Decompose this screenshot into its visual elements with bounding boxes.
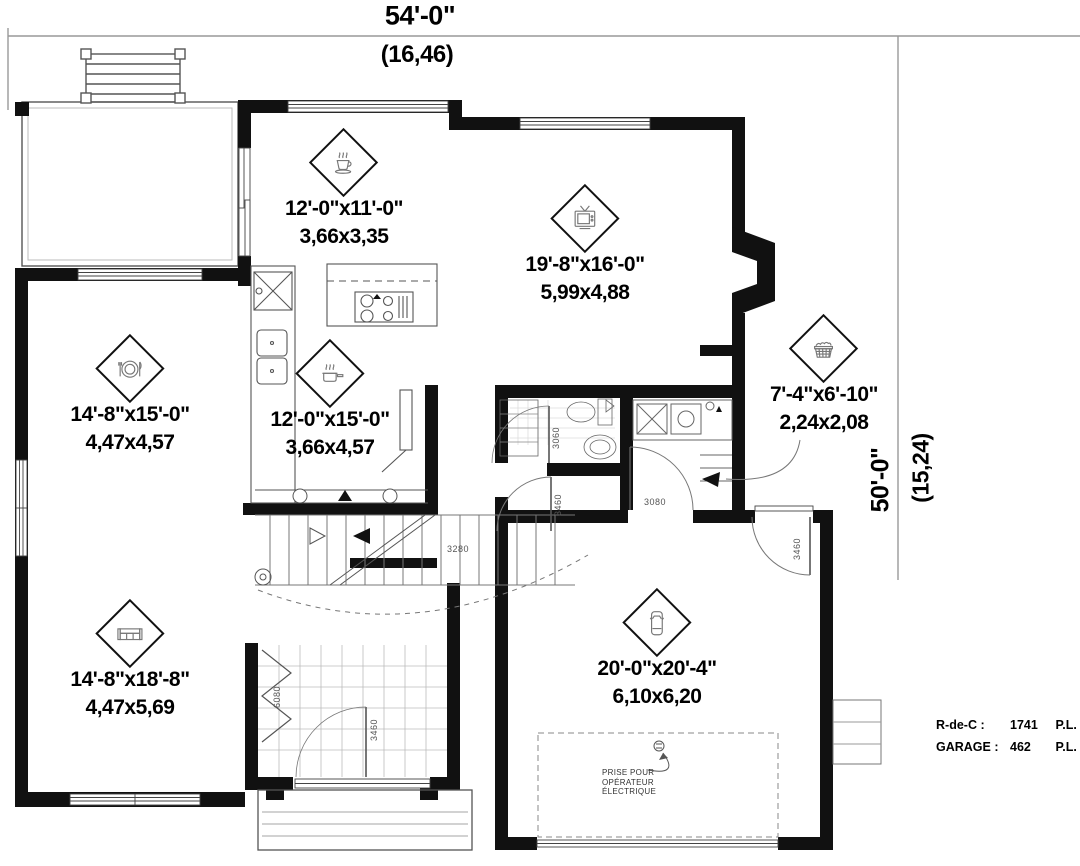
legend-value: 1741 bbox=[1010, 718, 1056, 732]
deck bbox=[22, 49, 238, 266]
room-label-dining: 14'-8"x15'-0" 4,47x4,57 bbox=[70, 335, 189, 457]
room-imperial: 19'-8"x16'-0" bbox=[525, 251, 644, 279]
legend-label: GARAGE : bbox=[936, 740, 1010, 754]
saucepan-icon bbox=[295, 338, 364, 407]
room-imperial: 12'-0"x11'-0" bbox=[285, 195, 403, 223]
legend-label: R-de-C : bbox=[936, 718, 1010, 732]
hall-door-size: 3460 bbox=[553, 494, 563, 516]
room-metric: 2,24x2,08 bbox=[780, 409, 869, 437]
bath-door-size: 3060 bbox=[551, 427, 561, 449]
mudroom-door-size: 3080 bbox=[644, 497, 666, 507]
note-line-3: ÉLECTRIQUE bbox=[602, 787, 656, 797]
right-dimension-feet: 50'-0" bbox=[867, 448, 896, 513]
room-metric: 3,66x4,57 bbox=[286, 434, 375, 462]
room-imperial: 20'-0"x20'-4" bbox=[597, 655, 716, 683]
legend-row-garage: GARAGE : 462 P.L. bbox=[936, 736, 1080, 758]
walls bbox=[15, 100, 833, 850]
right-dimension-metric: (15,24) bbox=[908, 433, 935, 502]
room-imperial: 7'-4"x6'-10" bbox=[770, 381, 878, 409]
area-legend: R-de-C : 1741 P.L. GARAGE : 462 P.L. bbox=[936, 714, 1080, 758]
room-label-dinette: 12'-0"x15'-0" 3,66x4,57 bbox=[270, 340, 389, 462]
closet-door-size: 6080 bbox=[272, 686, 282, 708]
note-line-2: OPÉRATEUR bbox=[602, 778, 656, 788]
room-label-garage: 20'-0"x20'-4" 6,10x6,20 bbox=[597, 589, 716, 711]
room-label-kitchen: 12'-0"x11'-0" 3,66x3,35 bbox=[285, 129, 403, 251]
legend-unit: P.L. bbox=[1056, 740, 1080, 754]
room-metric: 4,47x4,57 bbox=[86, 429, 175, 457]
garage-service-door-size: 3460 bbox=[792, 538, 802, 560]
legend-row-rdc: R-de-C : 1741 P.L. bbox=[936, 714, 1080, 736]
floor-plan-canvas: 54'-0" (16,46) 50'-0" (15,24) 12'-0"x11'… bbox=[0, 0, 1080, 866]
tv-icon bbox=[550, 183, 619, 252]
laundry-room bbox=[497, 400, 810, 575]
note-line-1: PRISE POUR bbox=[602, 768, 656, 778]
top-dimension-metric: (16,46) bbox=[381, 41, 454, 69]
legend-unit: P.L. bbox=[1056, 718, 1080, 732]
stair-opening-size: 3280 bbox=[447, 544, 469, 554]
legend-value: 462 bbox=[1010, 740, 1056, 754]
room-metric: 5,99x4,88 bbox=[541, 279, 630, 307]
room-metric: 3,66x3,35 bbox=[300, 223, 389, 251]
room-imperial: 12'-0"x15'-0" bbox=[270, 406, 389, 434]
room-label-laundry: 7'-4"x6'-10" 2,24x2,08 bbox=[770, 315, 878, 437]
car-icon bbox=[622, 587, 691, 656]
laundry-basket-icon bbox=[789, 313, 858, 382]
plate-cutlery-icon bbox=[95, 333, 164, 402]
garage-outlet-note: PRISE POUR OPÉRATEUR ÉLECTRIQUE bbox=[602, 768, 656, 797]
room-metric: 4,47x5,69 bbox=[86, 694, 175, 722]
room-label-family: 14'-8"x18'-8" 4,47x5,69 bbox=[70, 600, 189, 722]
front-door-size: 3460 bbox=[369, 719, 379, 741]
room-imperial: 14'-8"x18'-8" bbox=[70, 666, 189, 694]
room-label-living: 19'-8"x16'-0" 5,99x4,88 bbox=[525, 185, 644, 307]
top-dimension-feet: 54'-0" bbox=[385, 1, 455, 32]
windows bbox=[16, 101, 813, 847]
sofa-icon bbox=[95, 598, 164, 667]
coffee-cup-icon bbox=[309, 127, 378, 196]
foyer bbox=[258, 645, 472, 850]
room-imperial: 14'-8"x15'-0" bbox=[70, 401, 189, 429]
room-metric: 6,10x6,20 bbox=[613, 683, 702, 711]
